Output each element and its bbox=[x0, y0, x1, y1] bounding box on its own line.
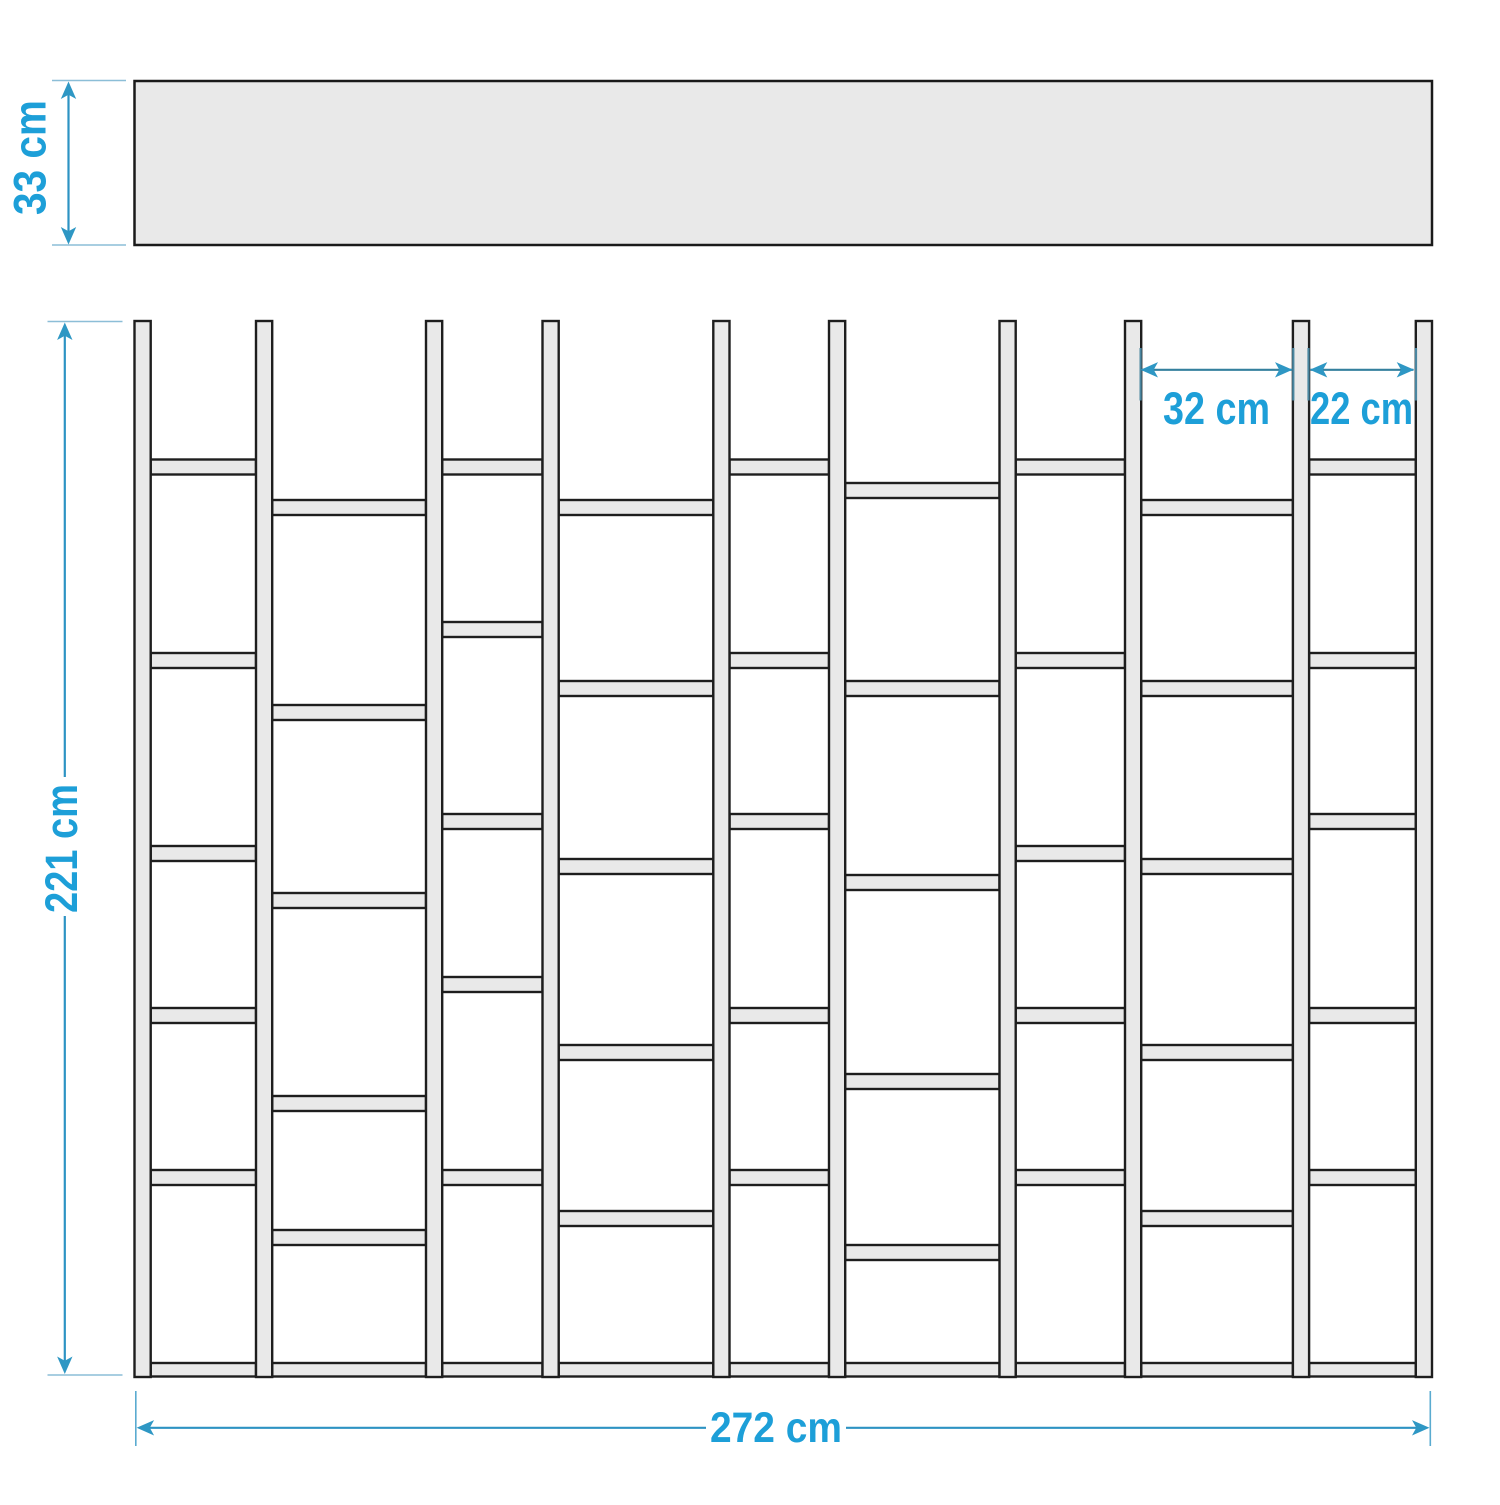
svg-text:221 cm: 221 cm bbox=[36, 784, 87, 913]
svg-text:22 cm: 22 cm bbox=[1310, 383, 1413, 434]
svg-text:33 cm: 33 cm bbox=[5, 100, 56, 215]
svg-text:272 cm: 272 cm bbox=[710, 1404, 842, 1452]
svg-text:32 cm: 32 cm bbox=[1163, 383, 1270, 434]
